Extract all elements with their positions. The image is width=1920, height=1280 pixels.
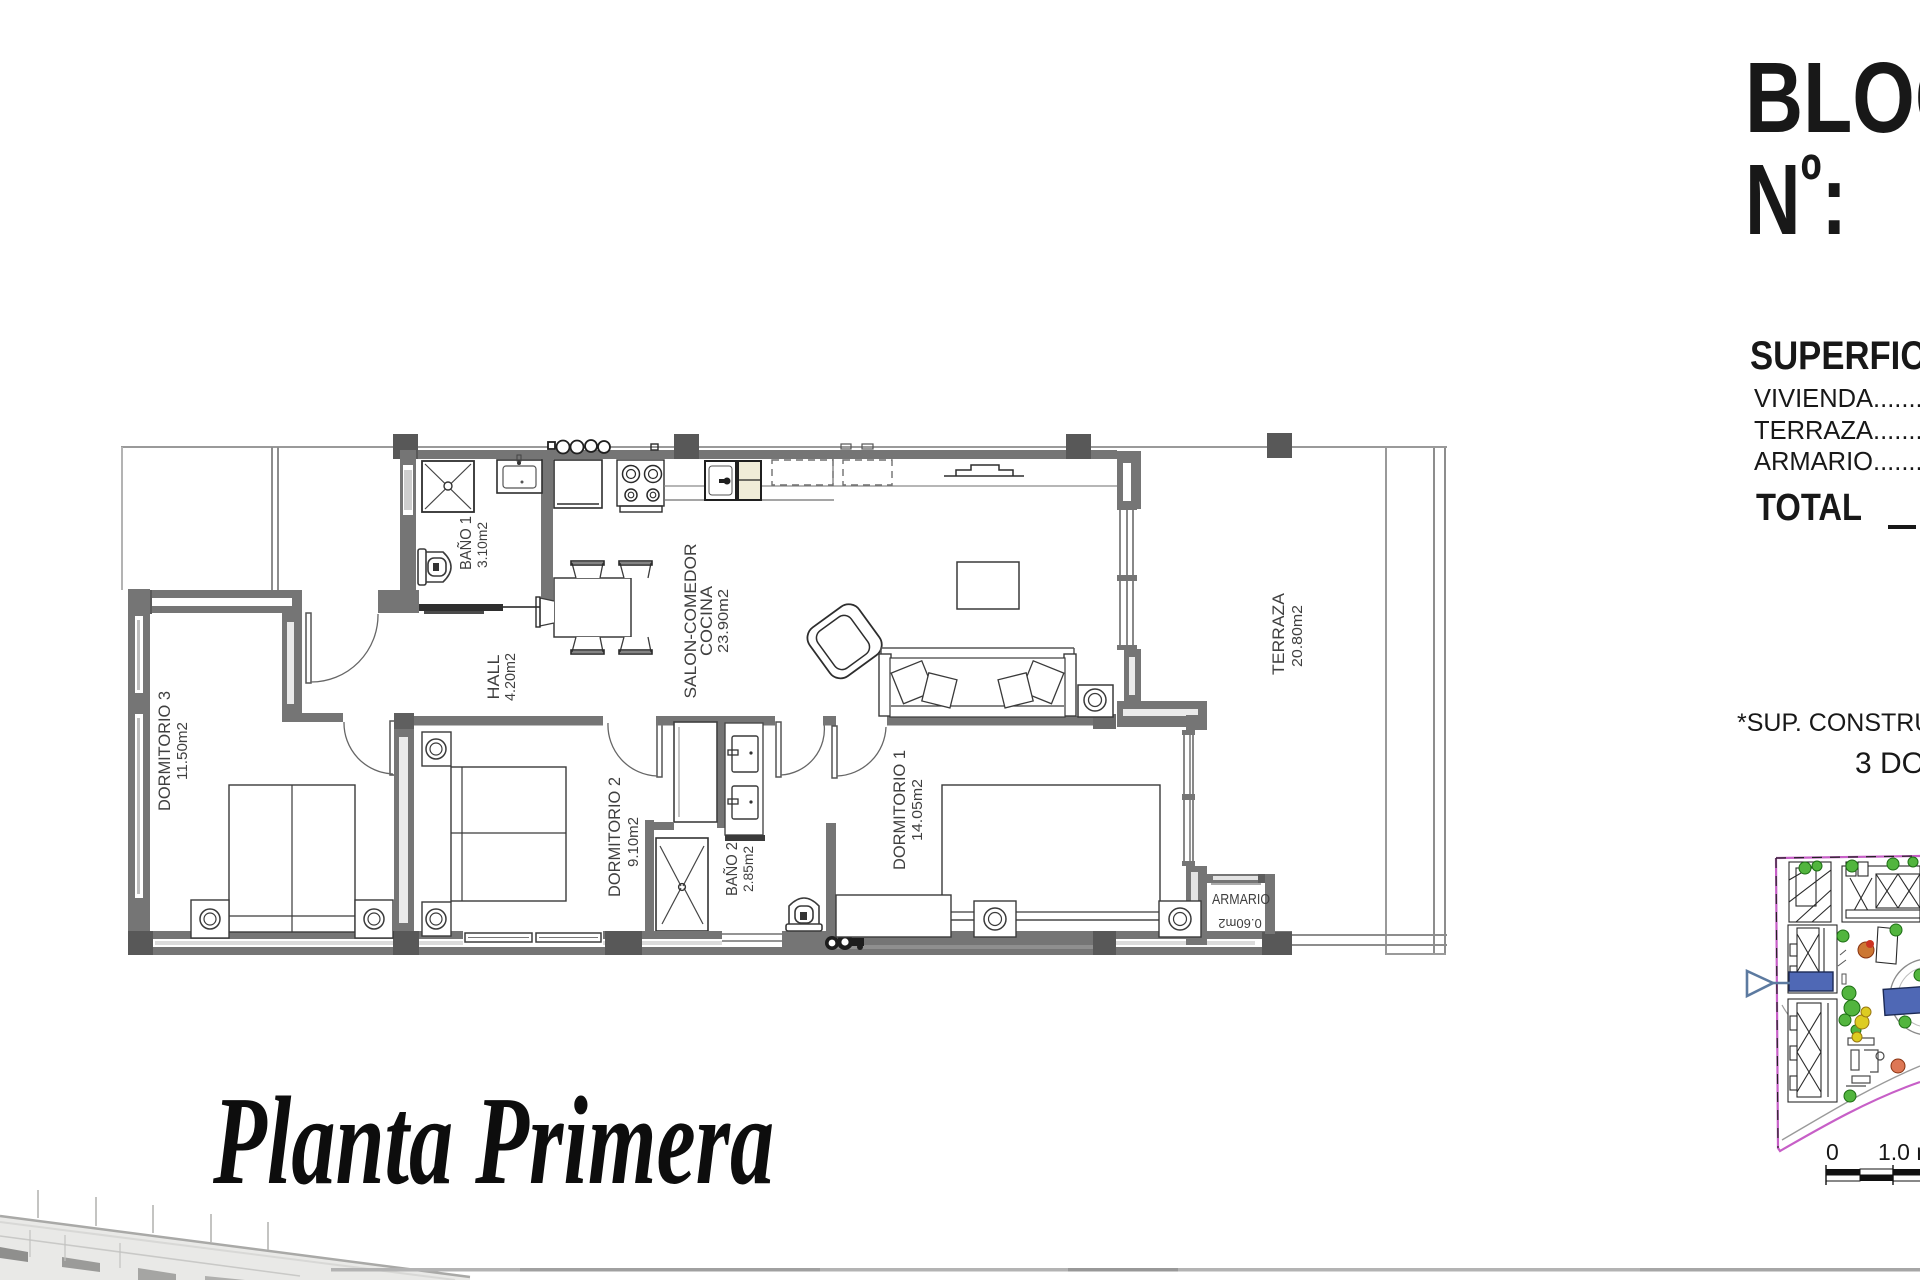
svg-text:Planta Primera: Planta Primera — [212, 1071, 774, 1211]
svg-text:DORMITORIO 1: DORMITORIO 1 — [891, 750, 909, 870]
svg-text:1.0 m: 1.0 m — [1878, 1139, 1920, 1165]
svg-text:0.60m2: 0.60m2 — [1218, 916, 1261, 931]
svg-text:COCINA: COCINA — [697, 585, 716, 656]
svg-text:ARMARIO.......................: ARMARIO........................ — [1754, 448, 1920, 476]
svg-text:14.05m2: 14.05m2 — [910, 779, 926, 841]
svg-text:DORMITORIO 3: DORMITORIO 3 — [156, 691, 174, 811]
svg-text:11.50m2: 11.50m2 — [175, 722, 191, 780]
svg-text:*SUP. CONSTRUIDA: *SUP. CONSTRUIDA — [1737, 709, 1920, 737]
svg-text:9.10m2: 9.10m2 — [626, 817, 642, 867]
svg-text:TERRAZA.......................: TERRAZA........................ — [1754, 417, 1920, 445]
svg-text:ARMARIO: ARMARIO — [1212, 891, 1270, 908]
svg-text:0: 0 — [1826, 1139, 1839, 1165]
svg-text:TERRAZA: TERRAZA — [1269, 592, 1288, 675]
svg-text:23.90m2: 23.90m2 — [716, 589, 732, 653]
svg-text:HALL: HALL — [485, 655, 503, 700]
svg-text:20.80m2: 20.80m2 — [1290, 605, 1306, 667]
svg-text:BAÑO 1: BAÑO 1 — [455, 516, 475, 570]
svg-text:Nº:: Nº: — [1745, 139, 1847, 256]
svg-text:3 DOR: 3 DOR — [1855, 747, 1920, 780]
svg-text:2.85m2: 2.85m2 — [740, 846, 756, 892]
svg-text:SUPERFICI: SUPERFICI — [1750, 334, 1920, 378]
svg-text:TOTAL: TOTAL — [1756, 487, 1862, 529]
svg-text:4.20m2: 4.20m2 — [503, 653, 519, 701]
svg-text:3.10m2: 3.10m2 — [474, 522, 490, 568]
svg-text:BAÑO 2: BAÑO 2 — [721, 842, 741, 896]
svg-text:DORMITORIO 2: DORMITORIO 2 — [606, 777, 624, 897]
svg-text:VIVIENDA......................: VIVIENDA........................ — [1754, 385, 1920, 413]
svg-text:BLOC: BLOC — [1745, 42, 1920, 154]
